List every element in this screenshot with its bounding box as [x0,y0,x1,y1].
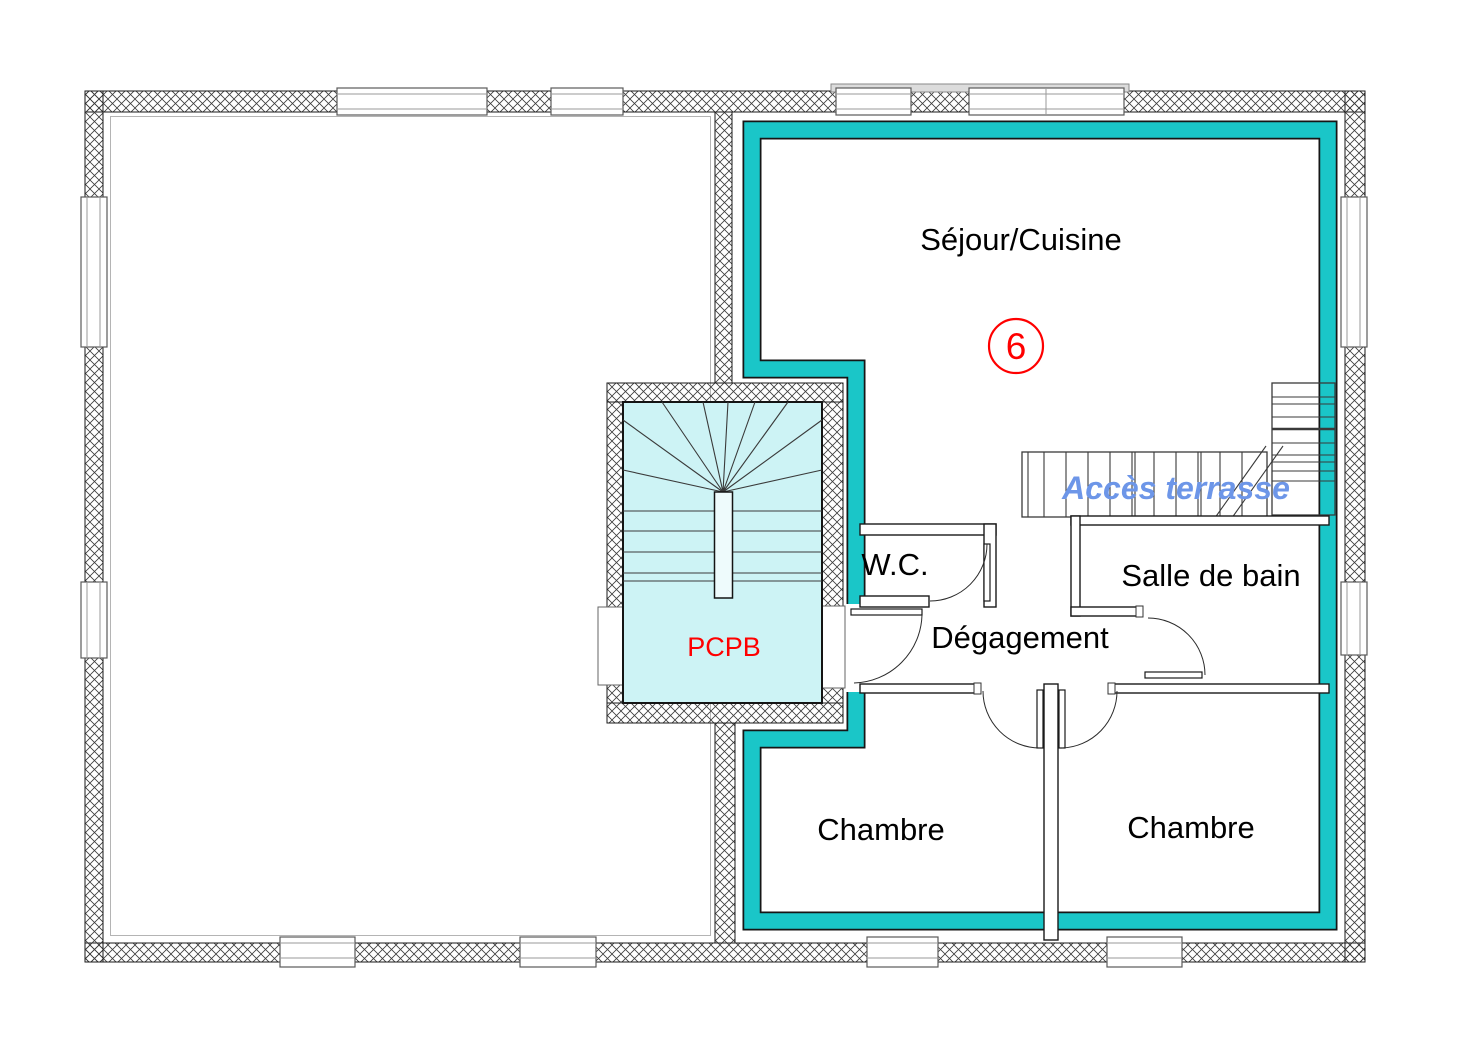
bathroom-wall-jog [1071,607,1141,616]
wc-wall-bottom [860,596,929,607]
stair-landing-opening-left [598,607,625,685]
stair-center-newel [715,492,733,598]
bedroom-divider-wall [1044,684,1058,940]
door-bathroom [1145,618,1205,678]
door-jamb [1108,683,1115,694]
window [867,937,938,967]
room-label-sejour-cuisine: Séjour/Cuisine [920,222,1122,257]
door-bedroom-2 [1059,690,1117,748]
door-bedroom-1 [983,690,1043,748]
room-label-chambre-1: Chambre [817,812,945,847]
stairwell-wall-bottom [607,703,843,723]
window [969,88,1124,115]
door-jamb [1136,606,1143,617]
window [337,88,487,115]
door-wc [930,544,990,601]
window [280,937,355,967]
door-jamb [974,683,981,694]
wc-wall-top [860,524,996,535]
window [81,582,107,658]
bathroom-wall-left [1071,516,1080,616]
window [520,937,596,967]
unit-number-text: 6 [1006,326,1027,367]
stairwell-label-pcpb: PCPB [687,632,761,662]
terrace-access-label: Accès terrasse [1061,470,1290,506]
window [81,197,107,347]
stairwell-wall-top [607,383,843,402]
bathroom-wall-top [1071,516,1329,525]
floor-plan: Séjour/Cuisine W.C. Salle de bain Dégage… [0,0,1458,1062]
door-unit-entrance [851,609,922,683]
wall-top [85,91,1365,112]
wall-middle-lower [715,723,735,943]
room-label-wc: W.C. [861,547,928,582]
room-label-salle-de-bain: Salle de bain [1121,558,1300,593]
room-label-chambre-2: Chambre [1127,810,1255,845]
wall-middle-upper [715,112,732,383]
window [836,88,911,115]
window [1107,937,1182,967]
floor-plan-page: Séjour/Cuisine W.C. Salle de bain Dégage… [0,0,1458,1062]
window [551,88,623,115]
hallway-wall-bottom-left [860,684,980,693]
room-label-degagement: Dégagement [931,620,1109,655]
window [1341,582,1367,655]
window [1341,197,1367,347]
unit-number-badge: 6 [989,319,1043,373]
hallway-wall-bottom-right [1114,684,1329,693]
